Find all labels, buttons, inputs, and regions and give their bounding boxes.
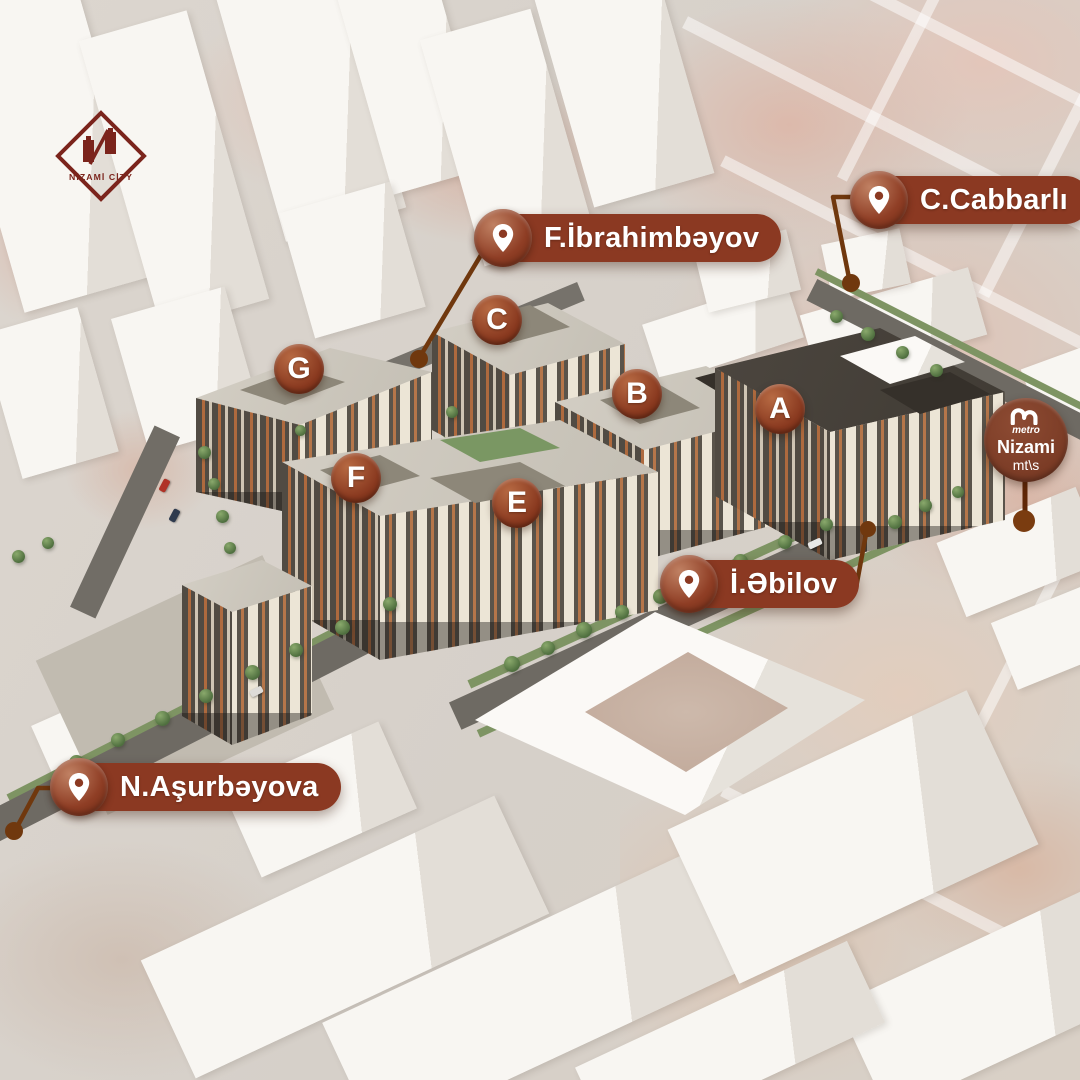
tree: [289, 643, 303, 657]
metro-station-type: mt\s: [1013, 458, 1039, 473]
tree: [245, 665, 260, 680]
metro-station-name: Nizami: [997, 438, 1055, 457]
tree: [111, 733, 125, 747]
metro-brand-text: metro: [1012, 426, 1040, 437]
tree: [12, 550, 25, 563]
location-pin-badge: [850, 171, 908, 229]
tree: [199, 689, 213, 703]
location-pin-badge: [474, 209, 532, 267]
logo-diamond: [58, 113, 144, 199]
tree: [504, 656, 520, 672]
tree: [335, 620, 350, 635]
building-marker-e[interactable]: E: [492, 478, 542, 528]
street-label: C.Cabbarlı: [920, 184, 1068, 217]
tree: [383, 597, 397, 611]
building-marker-b[interactable]: B: [612, 369, 662, 419]
location-pin-icon: [677, 569, 701, 599]
tree: [896, 346, 909, 359]
tree: [615, 605, 629, 619]
street-label: İ.Əbilov: [730, 568, 837, 601]
tree: [42, 537, 54, 549]
building-marker-g[interactable]: G: [274, 344, 324, 394]
tree: [446, 406, 458, 418]
tree: [919, 499, 932, 512]
nizami-city-logo: NİZAMİ CİTY: [55, 110, 147, 202]
building-marker-f[interactable]: F: [331, 453, 381, 503]
tree: [216, 510, 229, 523]
tree: [830, 310, 843, 323]
tree: [224, 542, 236, 554]
tree: [576, 622, 592, 638]
street-marker-ashurbeyova[interactable]: N.Aşurbəyova: [56, 763, 341, 811]
logo-text: NİZAMİ CİTY: [69, 173, 133, 182]
location-pin-icon: [67, 772, 91, 802]
street-marker-ibrahimbeyov[interactable]: F.İbrahimbəyov: [480, 214, 781, 262]
tree: [295, 425, 306, 436]
street-label: F.İbrahimbəyov: [544, 222, 759, 255]
building-marker-a[interactable]: A: [755, 384, 805, 434]
street-marker-cabbarli[interactable]: C.Cabbarlı: [856, 176, 1080, 224]
tree: [952, 486, 964, 498]
tree: [820, 518, 833, 531]
site-plan-scene: NİZAMİ CİTY F.İbrahimbəyov C.Cabbarlı: [0, 0, 1080, 1080]
tree: [198, 446, 211, 459]
metro-logo-icon: [1009, 407, 1043, 425]
location-pin-icon: [867, 185, 891, 215]
tree: [155, 711, 170, 726]
street-label: N.Aşurbəyova: [120, 771, 319, 804]
massing-block: [0, 307, 119, 479]
location-pin-icon: [491, 223, 515, 253]
building-marker-c[interactable]: C: [472, 295, 522, 345]
render-background: [0, 0, 1080, 1080]
street-marker-abilov[interactable]: İ.Əbilov: [666, 560, 859, 608]
metro-station-marker[interactable]: metro Nizami mt\s: [984, 398, 1068, 482]
tree: [778, 535, 792, 549]
tree: [541, 641, 555, 655]
tree: [861, 327, 875, 341]
tree: [208, 478, 220, 490]
tree: [930, 364, 943, 377]
location-pin-badge: [660, 555, 718, 613]
location-pin-badge: [50, 758, 108, 816]
tree: [888, 515, 902, 529]
